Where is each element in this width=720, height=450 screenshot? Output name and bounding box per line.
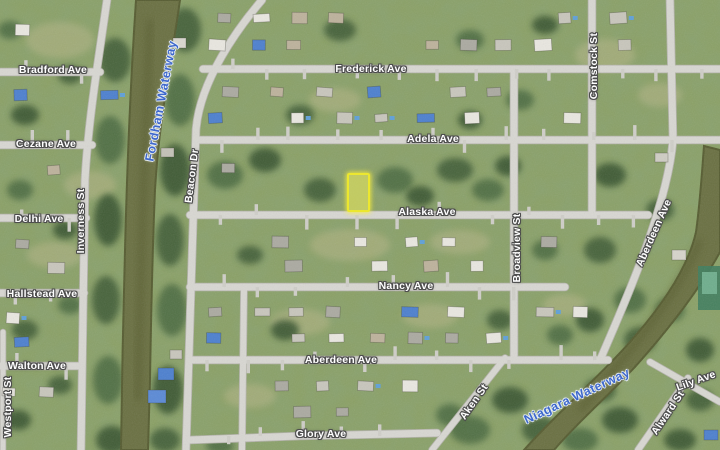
satellite-map[interactable]: Bradford AveCezane AveDelhi AveHallstead… [0,0,720,450]
highlighted-parcel[interactable] [347,173,370,212]
satellite-imagery [0,0,720,450]
